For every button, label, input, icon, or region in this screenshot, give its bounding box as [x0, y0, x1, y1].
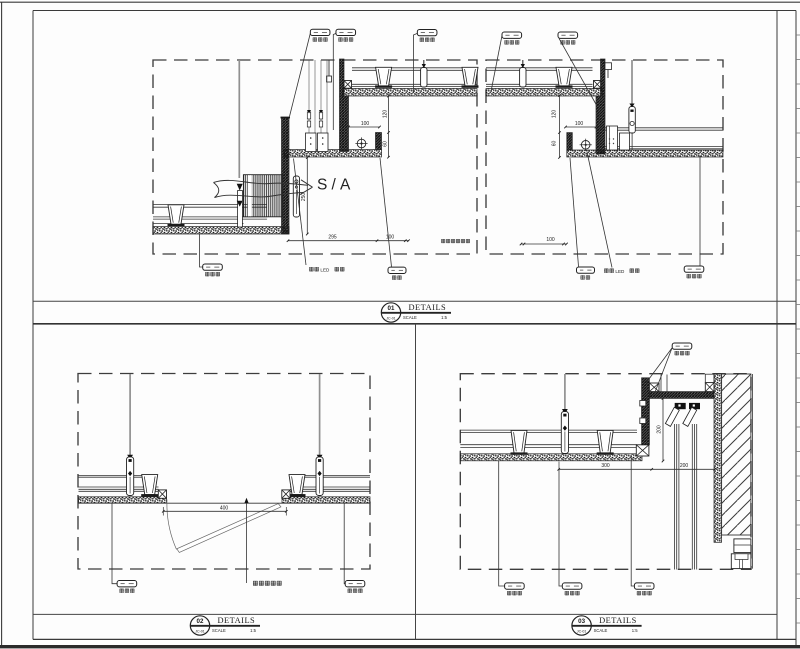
svg-text:100: 100 [575, 121, 584, 127]
svg-text:SCALE: SCALE [594, 628, 608, 633]
svg-text:1:5: 1:5 [632, 628, 638, 633]
svg-text:200: 200 [680, 463, 689, 469]
svg-text:SCALE: SCALE [403, 315, 417, 320]
svg-text:03: 03 [578, 618, 585, 625]
svg-text:DETAILS: DETAILS [599, 616, 637, 625]
svg-text:LED: LED [615, 269, 625, 274]
svg-text:400: 400 [220, 506, 229, 512]
svg-text:200: 200 [656, 425, 662, 434]
svg-text:01: 01 [388, 305, 395, 312]
svg-text:60: 60 [551, 141, 557, 147]
svg-text:JC-01: JC-01 [195, 630, 205, 634]
svg-text:250: 250 [301, 193, 307, 202]
svg-text:LED: LED [320, 268, 330, 273]
svg-text:1:5: 1:5 [250, 628, 256, 633]
svg-text:DETAILS: DETAILS [409, 303, 447, 312]
svg-text:SCALE: SCALE [212, 628, 226, 633]
svg-text:295: 295 [328, 235, 337, 241]
svg-text:DETAILS: DETAILS [218, 616, 256, 625]
svg-text:1:5: 1:5 [441, 315, 447, 320]
svg-text:100: 100 [361, 121, 370, 127]
svg-text:120: 120 [551, 110, 557, 119]
svg-text:02: 02 [197, 618, 204, 625]
svg-text:120: 120 [382, 110, 388, 119]
svg-text:60: 60 [382, 141, 388, 147]
svg-text:JC-01: JC-01 [386, 317, 396, 321]
svg-text:S/A: S/A [317, 177, 355, 194]
svg-text:JC-01: JC-01 [577, 630, 587, 634]
svg-text:100: 100 [546, 237, 555, 243]
svg-text:100: 100 [386, 235, 395, 241]
svg-text:300: 300 [601, 463, 610, 469]
